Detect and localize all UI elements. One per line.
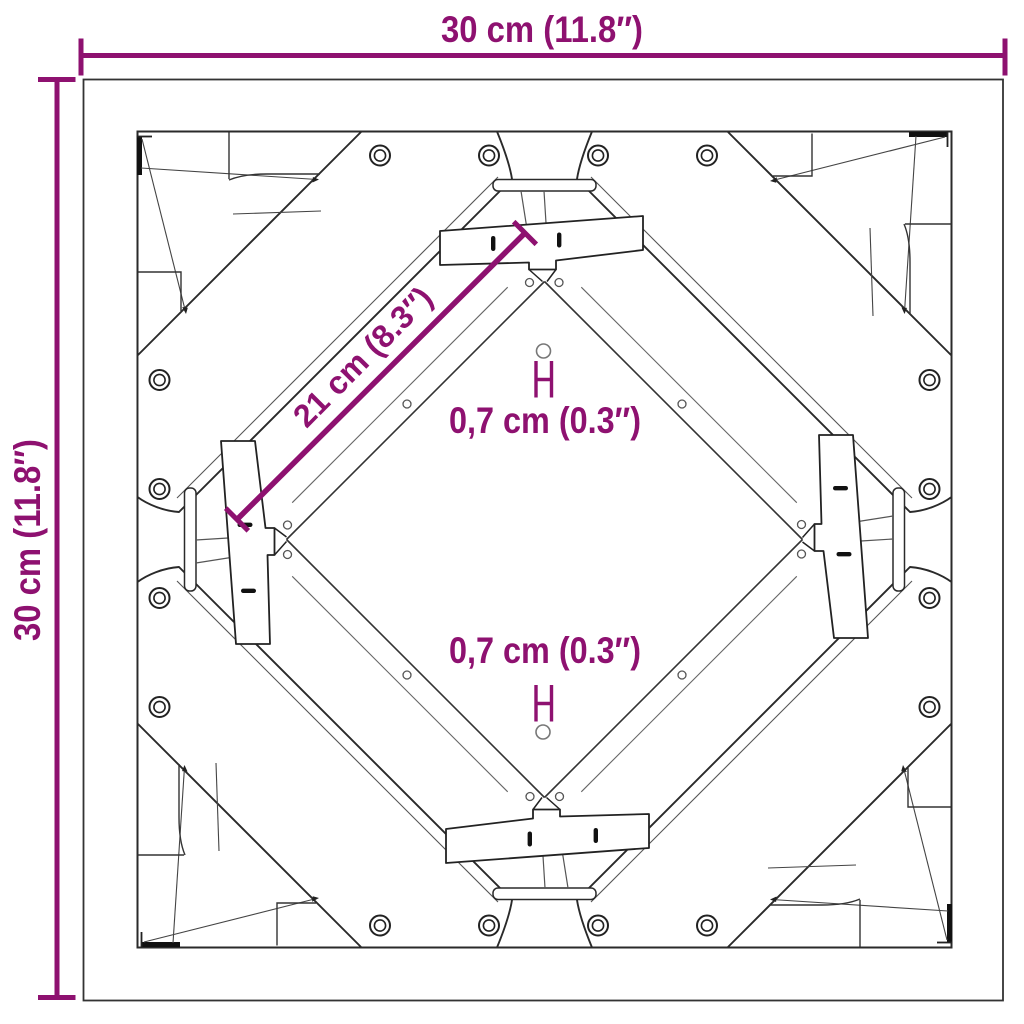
svg-text:30 cm (11.8″): 30 cm (11.8″): [7, 439, 48, 641]
svg-text:0,7 cm (0.3″): 0,7 cm (0.3″): [449, 400, 641, 441]
svg-text:30 cm (11.8″): 30 cm (11.8″): [441, 9, 643, 50]
svg-text:0,7 cm (0.3″): 0,7 cm (0.3″): [449, 630, 641, 671]
